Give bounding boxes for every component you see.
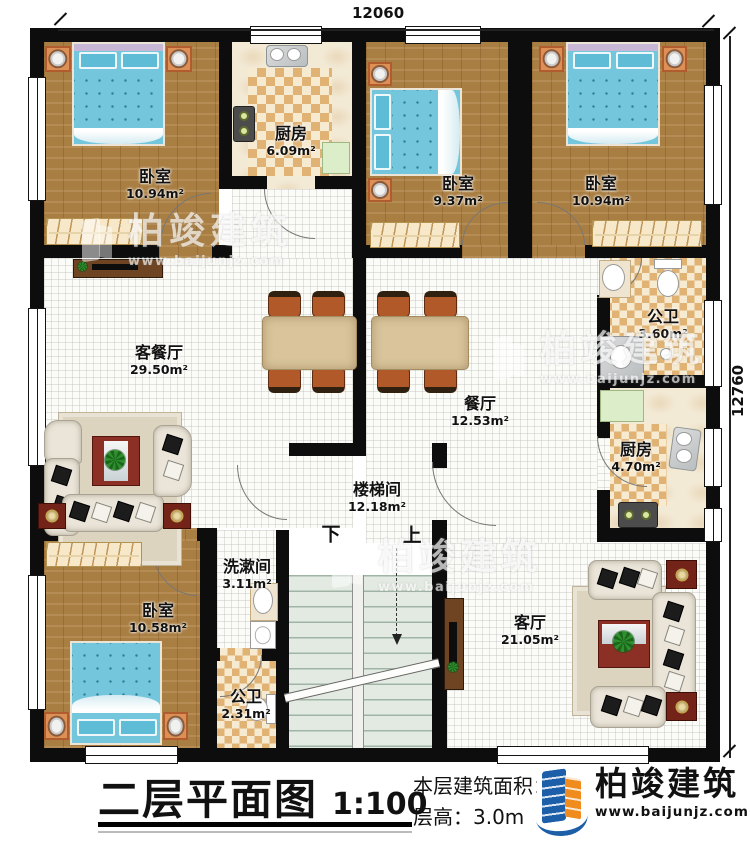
stair-up-label: 上 [402,521,421,548]
wardrobe [46,542,142,567]
dining-chair [424,366,457,393]
wall [276,530,289,762]
dimension-tick [702,14,716,28]
wardrobe [370,222,460,248]
room-label-dining: 餐厅12.53m² [451,394,509,428]
side-table [666,560,697,589]
stove [233,106,255,142]
nightstand [163,712,188,740]
toilet-bowl [657,270,679,297]
side-table [666,692,697,721]
brand-logo-icon [541,766,589,838]
window [704,508,722,542]
door-gap [537,245,585,258]
wall [212,245,232,258]
dimension-line-top [58,29,714,31]
brand-site: www.baijunjz.com [595,804,749,820]
nightstand [166,46,192,72]
double-bed [370,88,462,176]
nightstand [368,178,392,202]
window [704,85,722,205]
floor-plan-page: 卧室10.94m² 厨房6.09m² 卧室9.37m² 卧室10.94m² 客餐… [0,0,750,845]
room-label-bedroom-tr: 卧室10.94m² [572,174,630,208]
double-bed [70,641,162,745]
dining-chair [424,291,457,318]
stair-direction-line [396,548,397,636]
sink-bowl [676,432,692,446]
window [28,575,46,710]
wall [200,528,217,762]
room-label-living-dining: 客餐厅29.50m² [130,343,188,377]
sofa [62,494,164,532]
plant-icon [448,662,458,672]
dining-chair [268,366,301,393]
shower-drain [610,345,632,369]
cutting-board [322,142,350,174]
tv-icon [92,264,138,270]
side-table [38,503,66,529]
faucet-icon [660,348,672,360]
door-gap [267,176,315,189]
room-label-bedroom-bl: 卧室10.58m² [129,601,187,635]
dimension-right-value: 12760 [729,365,747,417]
brand-logo: 柏竣建筑 www.baijunjz.com [537,766,749,838]
door-gap [159,245,212,258]
dimension-tick [54,12,68,26]
title-underline [98,822,412,827]
dining-chair [377,366,410,393]
stair-arrow-icon [392,634,402,645]
armchair [153,425,192,497]
wardrobe [592,220,702,247]
sink-bowl [287,48,301,61]
window [704,300,722,387]
room-label-bedroom-tm: 卧室9.37m² [433,174,482,208]
plan-title: 二层平面图 [98,766,318,827]
room-label-bath-lower: 公卫2.31m² [221,687,270,721]
room-label-washroom: 洗漱间3.11m² [222,557,271,591]
room-label-living: 客厅21.05m² [501,613,559,647]
wall [352,42,366,258]
plant-icon [78,262,87,271]
dining-table [262,316,357,370]
dimension-top-value: 12060 [352,4,404,22]
stove [618,502,658,528]
room-label-bedroom-tl: 卧室10.94m² [126,167,184,201]
wall [289,443,366,456]
brand-name: 柏竣建筑 [595,766,749,802]
window [497,746,649,764]
wardrobe [46,218,143,245]
wall [508,42,532,258]
nightstand [45,46,71,72]
side-table [163,503,191,529]
sofa [588,560,662,600]
sink-bowl [676,449,692,463]
stair-down-label: 下 [321,520,340,547]
double-bed [566,42,660,146]
room-label-bath-upper: 公卫3.60m² [638,307,687,341]
wall [597,528,706,542]
room-label-kitchen-top: 厨房6.09m² [266,124,315,158]
window [704,428,722,487]
dining-chair [312,366,345,393]
dining-chair [312,291,345,318]
door-gap [462,245,508,258]
dining-chair [268,291,301,318]
nightstand [662,46,687,72]
floor-height-text: 层高：3.0m [413,801,524,830]
room-label-stairwell: 楼梯间12.18m² [348,480,406,514]
stair-stringer [352,575,364,748]
tile-kitchen-top [248,68,332,176]
plant-icon [105,450,125,470]
window [85,746,178,764]
dining-chair [377,291,410,318]
wall [597,490,610,530]
sofa [652,592,696,700]
nightstand [368,62,392,86]
title-underline-thin [98,831,412,833]
window [28,77,46,201]
washing-machine [250,621,276,649]
wall [219,176,267,189]
wall [44,245,159,258]
nightstand [539,46,564,72]
bath-sink [602,264,625,291]
toilet [654,259,682,269]
dining-table [371,316,469,370]
plan-title-row: 二层平面图 1:100 [98,766,428,827]
double-bed [72,42,165,146]
plan-scale: 1:100 [332,787,428,822]
plant-icon [613,631,634,652]
sink-bowl [270,48,284,61]
nightstand [44,712,69,740]
room-label-kitchen-right: 厨房4.70m² [611,440,660,474]
sofa [590,686,666,728]
kitchen-counter [600,390,644,422]
wall [219,42,232,176]
